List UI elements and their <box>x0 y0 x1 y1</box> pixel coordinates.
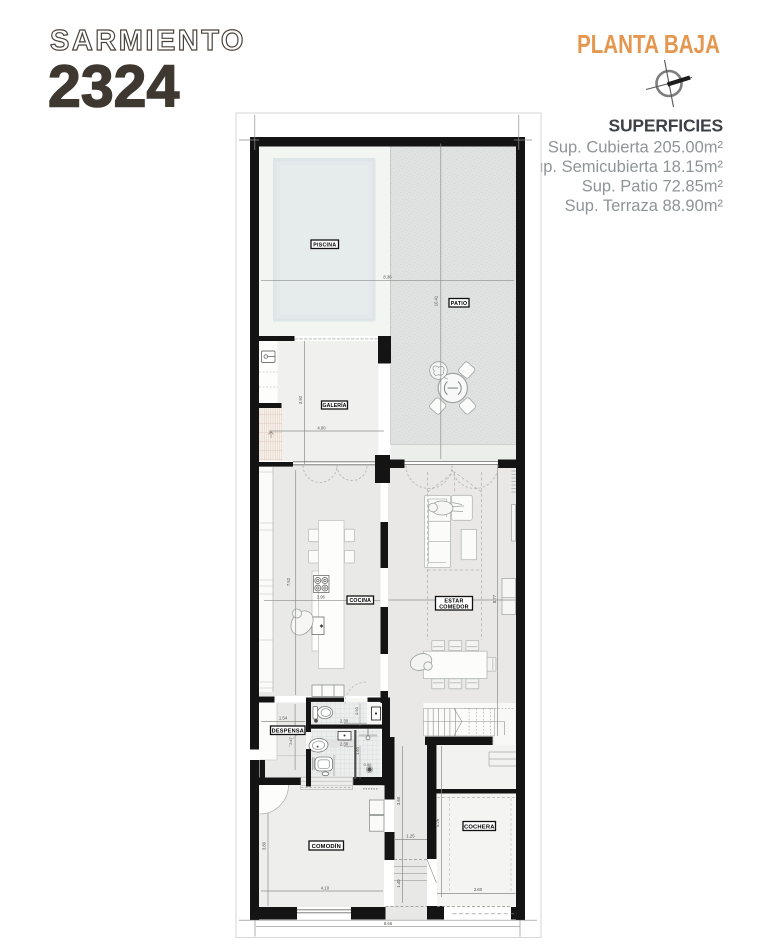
svg-text:COMEDOR: COMEDOR <box>439 604 469 610</box>
svg-text:PISCINA: PISCINA <box>313 242 336 248</box>
svg-text:Sup. Terraza 88.90m²: Sup. Terraza 88.90m² <box>565 197 724 215</box>
svg-text:2.30: 2.30 <box>340 741 349 746</box>
svg-text:1.54: 1.54 <box>279 716 288 721</box>
svg-text:PATIO: PATIO <box>451 301 468 307</box>
svg-text:2.47: 2.47 <box>288 736 293 745</box>
svg-text:3.80: 3.80 <box>262 841 267 850</box>
svg-text:SUPERFICIES: SUPERFICIES <box>609 116 724 136</box>
svg-text:Sup. Semicubierta 18.15m²: Sup. Semicubierta 18.15m² <box>523 158 723 176</box>
svg-text:7.52: 7.52 <box>286 577 291 586</box>
svg-text:3.60: 3.60 <box>396 796 401 805</box>
svg-text:3.92: 3.92 <box>298 395 303 404</box>
svg-text:8.36: 8.36 <box>383 275 392 280</box>
svg-text:1.25: 1.25 <box>406 834 415 839</box>
svg-text:2.30: 2.30 <box>340 718 349 723</box>
svg-text:PLANTA BAJA: PLANTA BAJA <box>577 29 720 59</box>
svg-text:COMODÍN: COMODÍN <box>312 842 341 850</box>
svg-text:COCINA: COCINA <box>349 598 371 604</box>
svg-text:DESPENSA: DESPENSA <box>272 729 304 735</box>
svg-text:2324: 2324 <box>48 54 179 120</box>
svg-text:GALERÍA: GALERÍA <box>322 401 346 409</box>
svg-text:SARMIENTO: SARMIENTO <box>50 25 246 57</box>
svg-text:8.77: 8.77 <box>492 594 497 603</box>
svg-text:Sup. Patio 72.85m²: Sup. Patio 72.85m² <box>582 178 724 196</box>
svg-text:1.40: 1.40 <box>396 879 401 888</box>
svg-text:4.00: 4.00 <box>317 425 326 430</box>
svg-text:8.66: 8.66 <box>384 921 393 926</box>
svg-text:10.41: 10.41 <box>434 295 439 306</box>
svg-text:0.90: 0.90 <box>354 706 359 715</box>
svg-text:1.60: 1.60 <box>355 746 360 755</box>
svg-text:2.60: 2.60 <box>474 887 483 892</box>
svg-text:3.96: 3.96 <box>317 595 326 600</box>
svg-text:4.10: 4.10 <box>321 885 330 890</box>
svg-text:Sup. Cubierta 205.00m²: Sup. Cubierta 205.00m² <box>548 139 724 157</box>
svg-text:COCHERA: COCHERA <box>464 824 495 830</box>
svg-text:5.26: 5.26 <box>435 818 440 827</box>
svg-text:0.90: 0.90 <box>364 762 373 767</box>
